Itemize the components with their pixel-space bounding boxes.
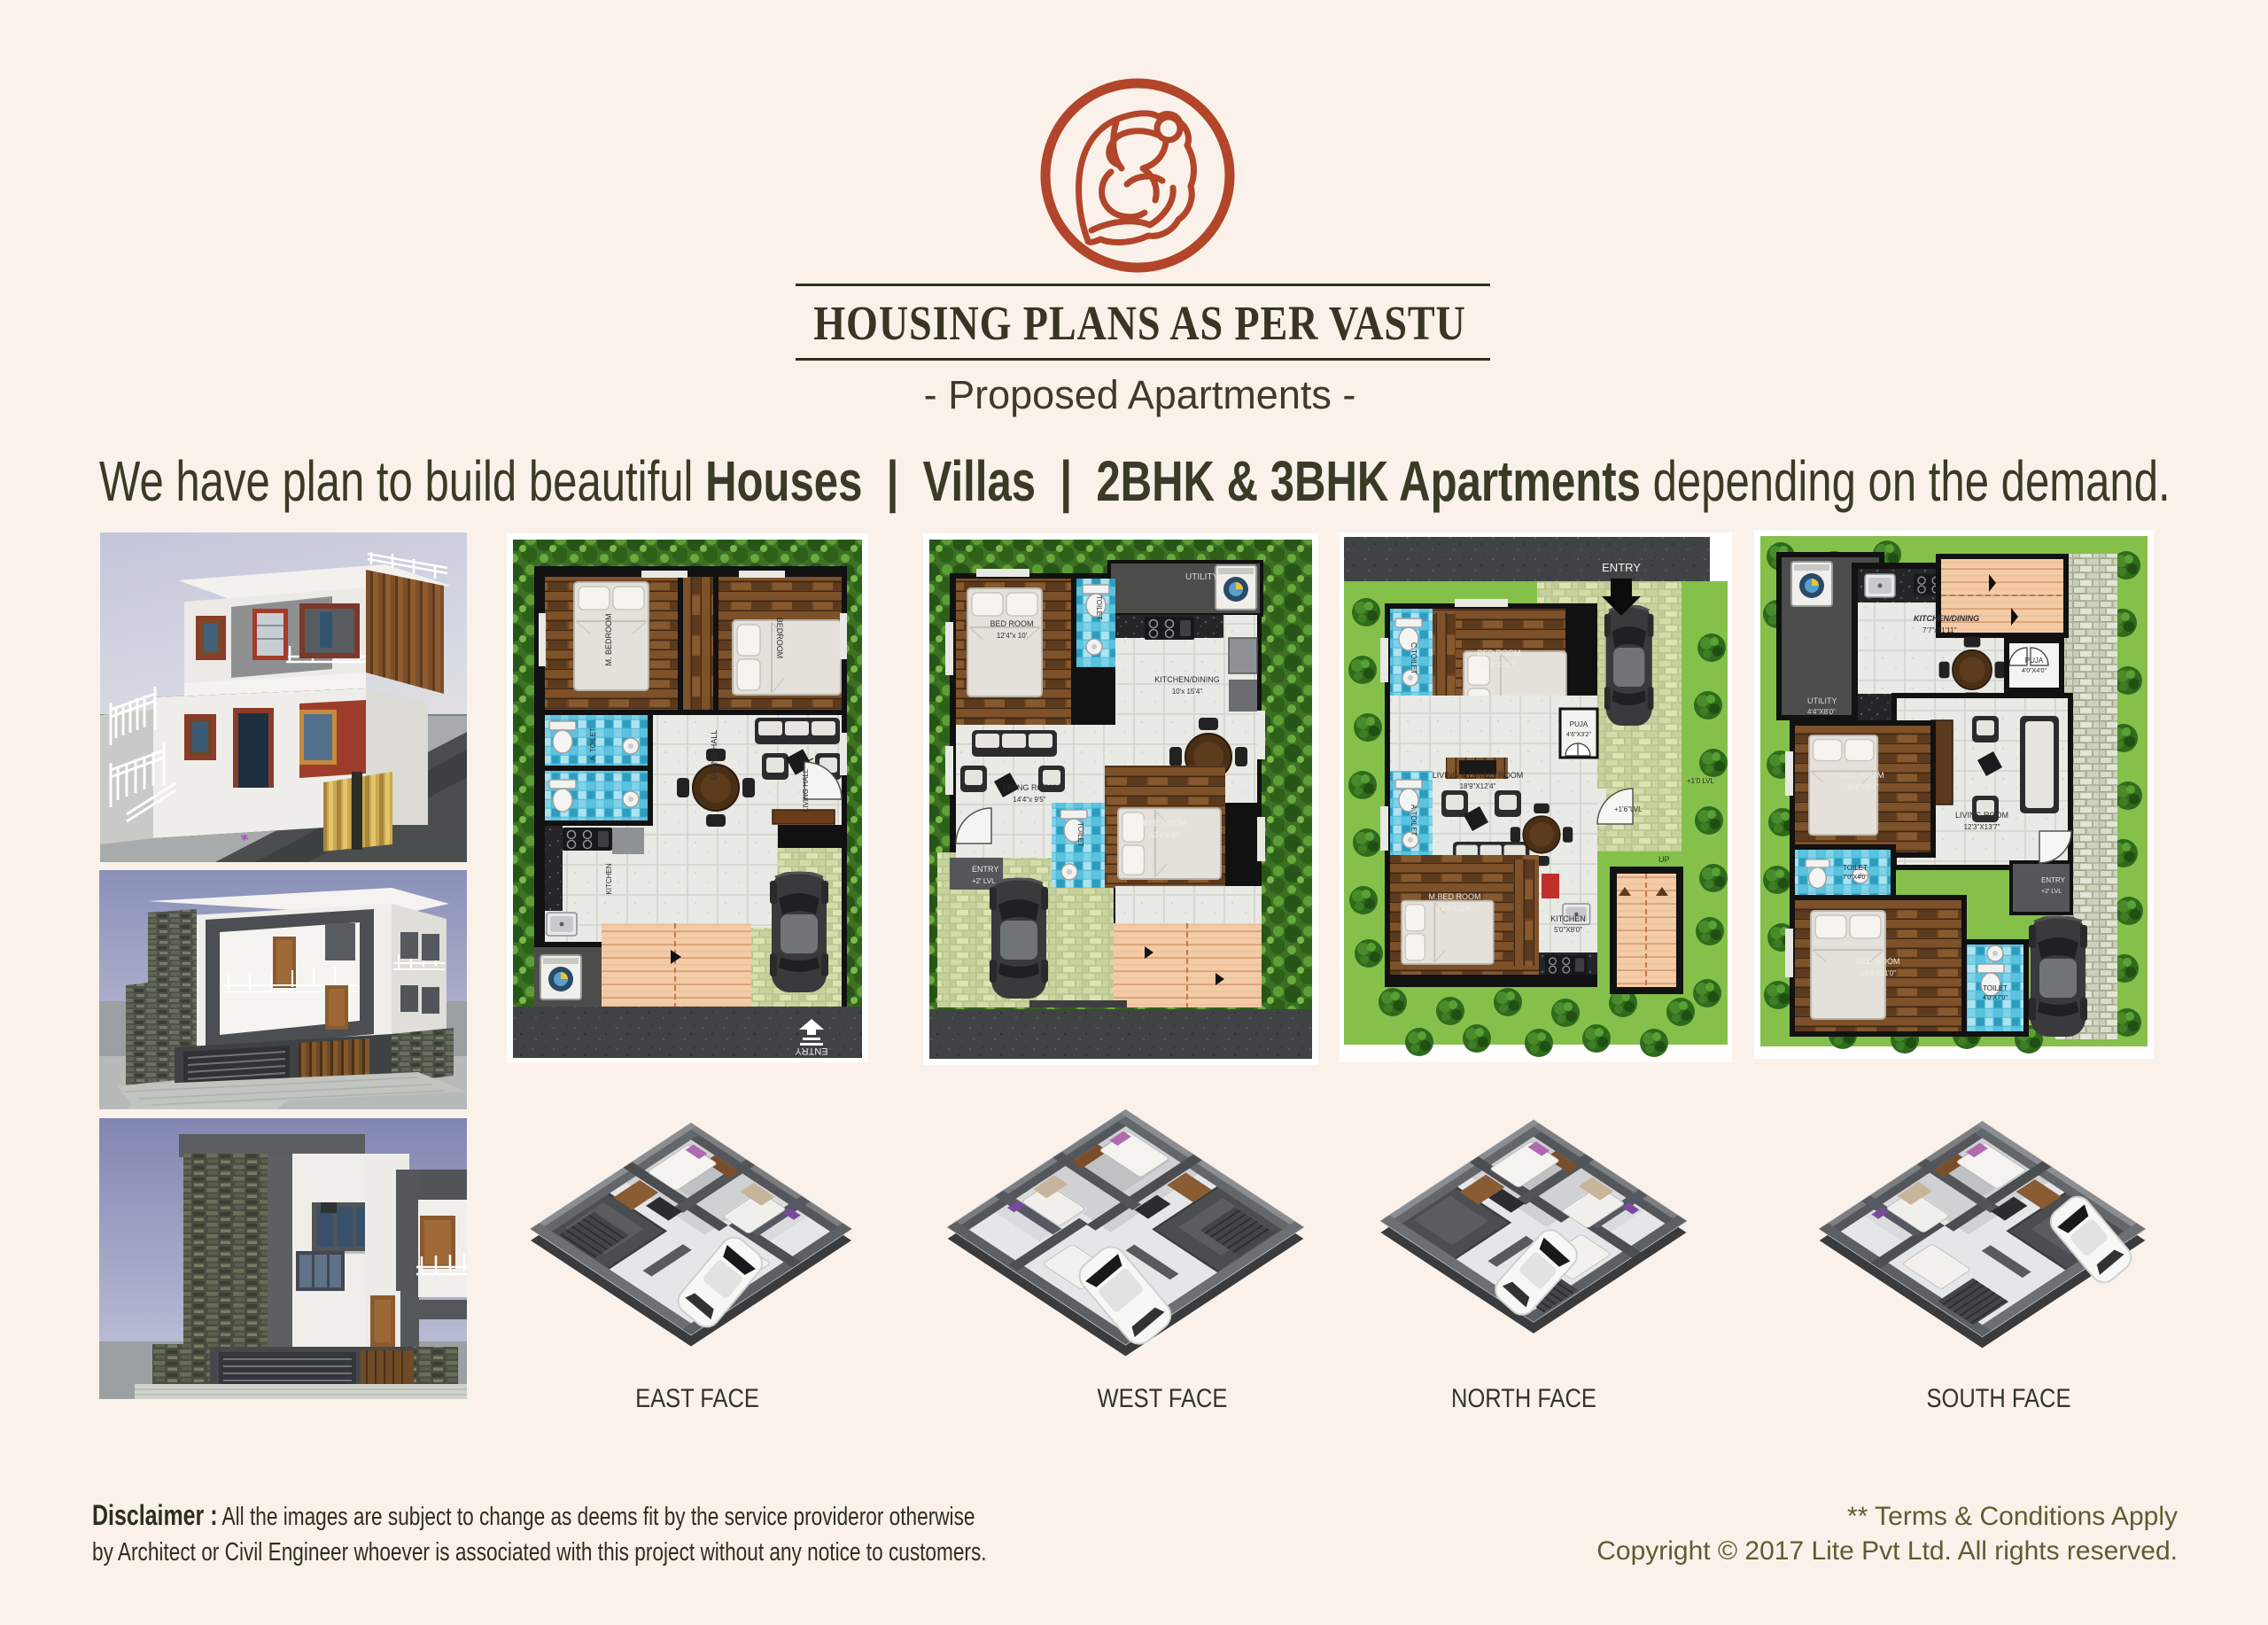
- svg-text:12'3"X13'7": 12'3"X13'7": [1964, 823, 2000, 831]
- svg-text:BED ROOM: BED ROOM: [1856, 957, 1899, 966]
- svg-text:14'4"x 9'5": 14'4"x 9'5": [1013, 796, 1045, 804]
- svg-text:M. BEDROOM: M. BEDROOM: [604, 613, 613, 665]
- svg-text:M.BED ROOM: M.BED ROOM: [1428, 892, 1480, 901]
- svg-text:C.TOILET: C.TOILET: [1410, 642, 1417, 674]
- svg-text:12'0"X11'4": 12'0"X11'4": [1437, 905, 1472, 913]
- svg-text:TOILET: TOILET: [1076, 822, 1084, 847]
- svg-text:7'7"x11'11": 7'7"x11'11": [1922, 626, 1956, 634]
- svg-text:UP: UP: [1658, 855, 1670, 864]
- svg-text:LIVING ROOM: LIVING ROOM: [1955, 811, 2008, 820]
- svg-text:A. TOILET: A. TOILET: [589, 727, 597, 761]
- svg-text:DINING HALL: DINING HALL: [710, 730, 718, 781]
- svg-text:BED ROOM: BED ROOM: [1840, 771, 1884, 780]
- svg-text:7'0"X4'0": 7'0"X4'0": [1843, 875, 1868, 881]
- svg-text:13'4"X11'0": 13'4"X11'0": [1860, 969, 1896, 977]
- svg-text:+1'6"LVL: +1'6"LVL: [1614, 805, 1643, 813]
- svg-text:A.TOILET: A.TOILET: [1410, 805, 1417, 836]
- svg-text:KITCHEN/DINING: KITCHEN/DINING: [1154, 675, 1220, 684]
- svg-text:10'8"X9'4": 10'8"X9'4": [1846, 783, 1878, 791]
- svg-text:PUJA: PUJA: [1570, 720, 1588, 728]
- svg-text:ENTRY: ENTRY: [795, 1046, 828, 1056]
- svg-text:18'9"X12'4": 18'9"X12'4": [1460, 782, 1496, 790]
- svg-text:KITCHEN: KITCHEN: [605, 863, 613, 894]
- svg-text:4'0"X7'0": 4'0"X7'0": [1983, 995, 2008, 1001]
- svg-text:+2' LVL: +2' LVL: [2041, 889, 2062, 895]
- svg-text:12'4"x 10': 12'4"x 10': [997, 632, 1028, 640]
- svg-text:10'x 15'4": 10'x 15'4": [1172, 688, 1203, 696]
- svg-text:12'8"X10'4": 12'8"X10'4": [1481, 661, 1518, 669]
- svg-text:4'0"X4'0": 4'0"X4'0": [2022, 668, 2047, 674]
- svg-text:5'0"X8'0": 5'0"X8'0": [1554, 926, 1582, 934]
- svg-text:KITCHEN/DINING: KITCHEN/DINING: [1914, 614, 1979, 623]
- svg-text:LIVING & DINING ROOM: LIVING & DINING ROOM: [1433, 771, 1524, 780]
- svg-text:TOILET: TOILET: [1095, 595, 1103, 620]
- svg-text:BED ROOM: BED ROOM: [990, 619, 1033, 628]
- svg-text:KITCHEN: KITCHEN: [1550, 914, 1586, 923]
- svg-text:UTILITY: UTILITY: [1185, 572, 1219, 582]
- svg-text:UTILITY: UTILITY: [1807, 696, 1837, 705]
- svg-text:+1'0 LVL: +1'0 LVL: [1687, 777, 1715, 785]
- svg-text:+2' LVL: +2' LVL: [972, 877, 996, 885]
- svg-text:4'4"X8'0": 4'4"X8'0": [1807, 708, 1836, 716]
- svg-text:ENTRY: ENTRY: [1602, 561, 1641, 574]
- svg-text:12'4"x 10': 12'4"x 10': [1150, 831, 1181, 839]
- svg-text:LIVING HALL: LIVING HALL: [802, 768, 810, 812]
- svg-text:4'6"X3'2": 4'6"X3'2": [1566, 732, 1591, 738]
- svg-text:ENTRY: ENTRY: [2041, 876, 2066, 884]
- svg-text:BED ROOM: BED ROOM: [1477, 649, 1520, 657]
- svg-text:ENTRY: ENTRY: [972, 865, 998, 874]
- svg-text:PUJA: PUJA: [2025, 657, 2044, 665]
- svg-text:BED ROOM: BED ROOM: [1143, 819, 1186, 828]
- svg-text:BEDROOM: BEDROOM: [775, 618, 784, 659]
- svg-text:LIVING ROOM: LIVING ROOM: [1003, 783, 1056, 792]
- svg-text:TOILET: TOILET: [1983, 984, 2008, 992]
- svg-text:TOILET: TOILET: [1843, 864, 1868, 872]
